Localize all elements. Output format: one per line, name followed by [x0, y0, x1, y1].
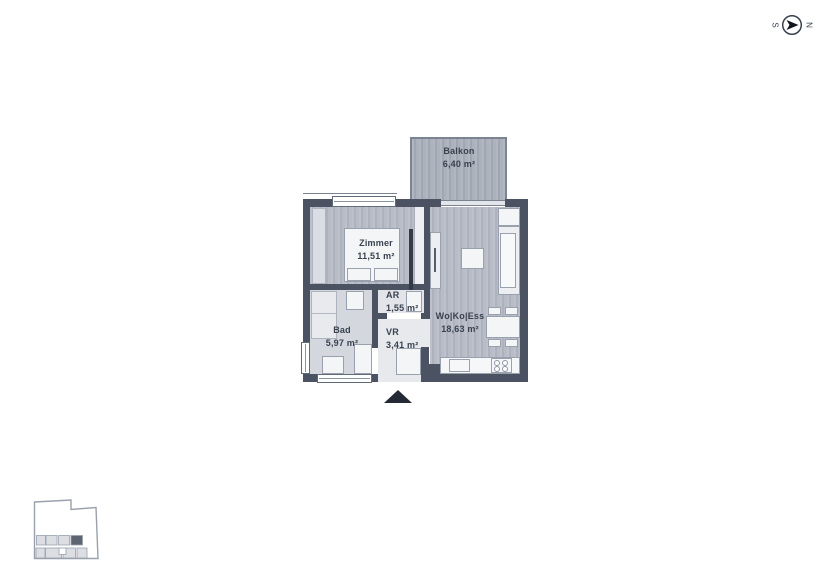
room-label-wokoess: Wo|Ko|Ess 18,63 m² — [410, 310, 510, 336]
wall-segment — [520, 199, 528, 382]
wall-segment — [396, 199, 441, 207]
window-bottom-mullion — [319, 378, 370, 379]
window-left-mullion — [305, 344, 306, 372]
room-name: Wo|Ko|Ess — [410, 310, 510, 323]
unit — [59, 536, 70, 546]
wall-segment — [372, 290, 378, 348]
room-name: AR — [386, 289, 426, 302]
room-area: 18,63 m² — [410, 323, 510, 336]
wardrobe — [312, 208, 326, 284]
unit — [37, 536, 46, 546]
wall-segment — [424, 206, 430, 284]
sofa-seat — [500, 233, 516, 288]
room-name: Zimmer — [336, 237, 416, 250]
hall-wardrobe — [396, 348, 421, 375]
room-area: 11,51 m² — [336, 250, 416, 263]
dining-chair — [505, 339, 518, 347]
wall-segment — [303, 374, 317, 382]
unit — [77, 548, 87, 558]
wall-segment — [372, 374, 378, 382]
wall-segment — [429, 364, 440, 377]
floor-plan: Balkon 6,40 m² Zimmer 11,51 m² AR 1,55 m… — [0, 0, 828, 581]
unit — [36, 548, 45, 558]
washbasin — [322, 356, 344, 374]
room-label-bad: Bad 5,97 m² — [312, 324, 372, 350]
washing-machine — [346, 291, 364, 310]
unit — [46, 536, 57, 546]
dining-chair — [488, 339, 501, 347]
room-area: 3,41 m² — [386, 339, 426, 352]
wall-segment — [303, 199, 310, 342]
key-plan — [22, 497, 108, 575]
room-name: Balkon — [409, 145, 509, 158]
bed-pillow — [374, 268, 398, 281]
stove-burner-icon — [494, 366, 500, 372]
cabinet — [498, 208, 520, 226]
stairwell-notch — [59, 548, 66, 555]
tv — [434, 248, 436, 272]
stove-burner-icon — [502, 366, 508, 372]
kitchen-sink — [449, 359, 470, 372]
room-area: 5,97 m² — [312, 337, 372, 350]
room-area: 6,40 m² — [409, 158, 509, 171]
wall-segment — [421, 347, 429, 382]
highlighted-unit — [71, 536, 83, 546]
floor-plan-page: S N — [0, 0, 828, 581]
window-top-mullion — [334, 201, 394, 202]
window-sill-line — [303, 193, 397, 194]
balcony-door — [441, 200, 505, 206]
room-name: Bad — [312, 324, 372, 337]
entrance-arrow-icon — [384, 390, 412, 403]
bathtub-divider — [312, 313, 336, 314]
room-label-zimmer: Zimmer 11,51 m² — [336, 237, 416, 263]
coffee-table — [461, 248, 484, 269]
bed-pillow — [347, 268, 371, 281]
room-label-balkon: Balkon 6,40 m² — [409, 145, 509, 171]
